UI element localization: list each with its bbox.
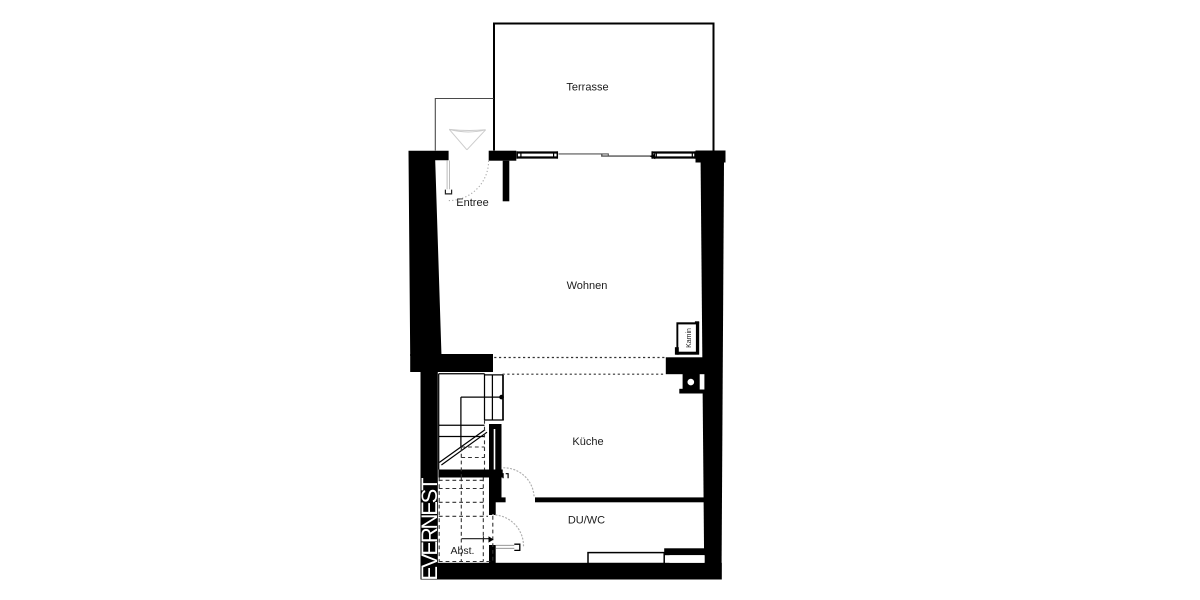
svg-text:Terrasse: Terrasse	[566, 82, 608, 94]
svg-text:Kamin: Kamin	[686, 328, 693, 348]
svg-text:Abst.: Abst.	[451, 545, 475, 557]
svg-text:Küche: Küche	[572, 436, 603, 448]
svg-text:Entree: Entree	[456, 197, 488, 209]
svg-text:EVERNEST: EVERNEST	[417, 478, 442, 581]
svg-text:Wohnen: Wohnen	[567, 280, 608, 292]
svg-text:DU/WC: DU/WC	[568, 515, 605, 527]
